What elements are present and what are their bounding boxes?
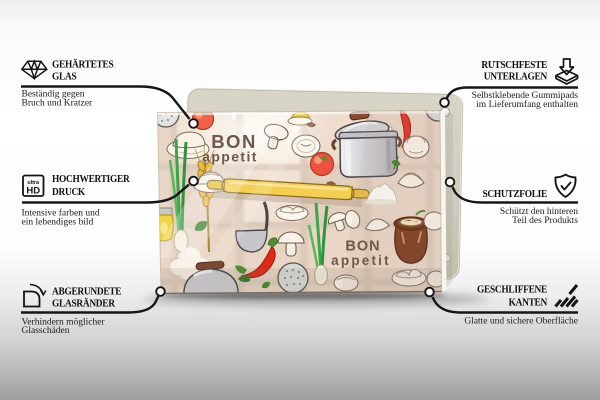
svg-text:KANTEN: KANTEN bbox=[509, 297, 548, 309]
svg-text:ein lebendiges bild: ein lebendiges bild bbox=[22, 218, 94, 228]
svg-text:DRUCK: DRUCK bbox=[52, 187, 85, 199]
svg-text:HD: HD bbox=[26, 186, 40, 197]
svg-text:Teil des Produkts: Teil des Produkts bbox=[512, 216, 578, 226]
svg-text:appetit: appetit bbox=[331, 253, 391, 268]
svg-text:HOCHWERTIGER: HOCHWERTIGER bbox=[52, 174, 131, 186]
svg-text:GESCHLIFFENE: GESCHLIFFENE bbox=[477, 284, 548, 296]
svg-text:GLAS: GLAS bbox=[52, 71, 77, 83]
svg-text:Glatte und sichere Oberfläche: Glatte und sichere Oberfläche bbox=[464, 316, 578, 327]
svg-text:RUTSCHFESTE: RUTSCHFESTE bbox=[481, 60, 547, 72]
svg-text:GLASRÄNDER: GLASRÄNDER bbox=[52, 296, 116, 310]
svg-text:Glasschäden: Glasschäden bbox=[22, 326, 70, 336]
svg-text:GEHÄRTETES: GEHÄRTETES bbox=[52, 57, 114, 71]
svg-text:Bruch und Kratzer: Bruch und Kratzer bbox=[22, 99, 94, 109]
svg-text:ABGERUNDETE: ABGERUNDETE bbox=[52, 286, 122, 298]
svg-text:UNTERLAGEN: UNTERLAGEN bbox=[484, 71, 548, 83]
svg-text:im Lieferumfang enthalten: im Lieferumfang enthalten bbox=[476, 99, 578, 110]
svg-text:SCHUTZFOLIE: SCHUTZFOLIE bbox=[482, 189, 547, 201]
svg-text:appetit: appetit bbox=[202, 149, 258, 165]
